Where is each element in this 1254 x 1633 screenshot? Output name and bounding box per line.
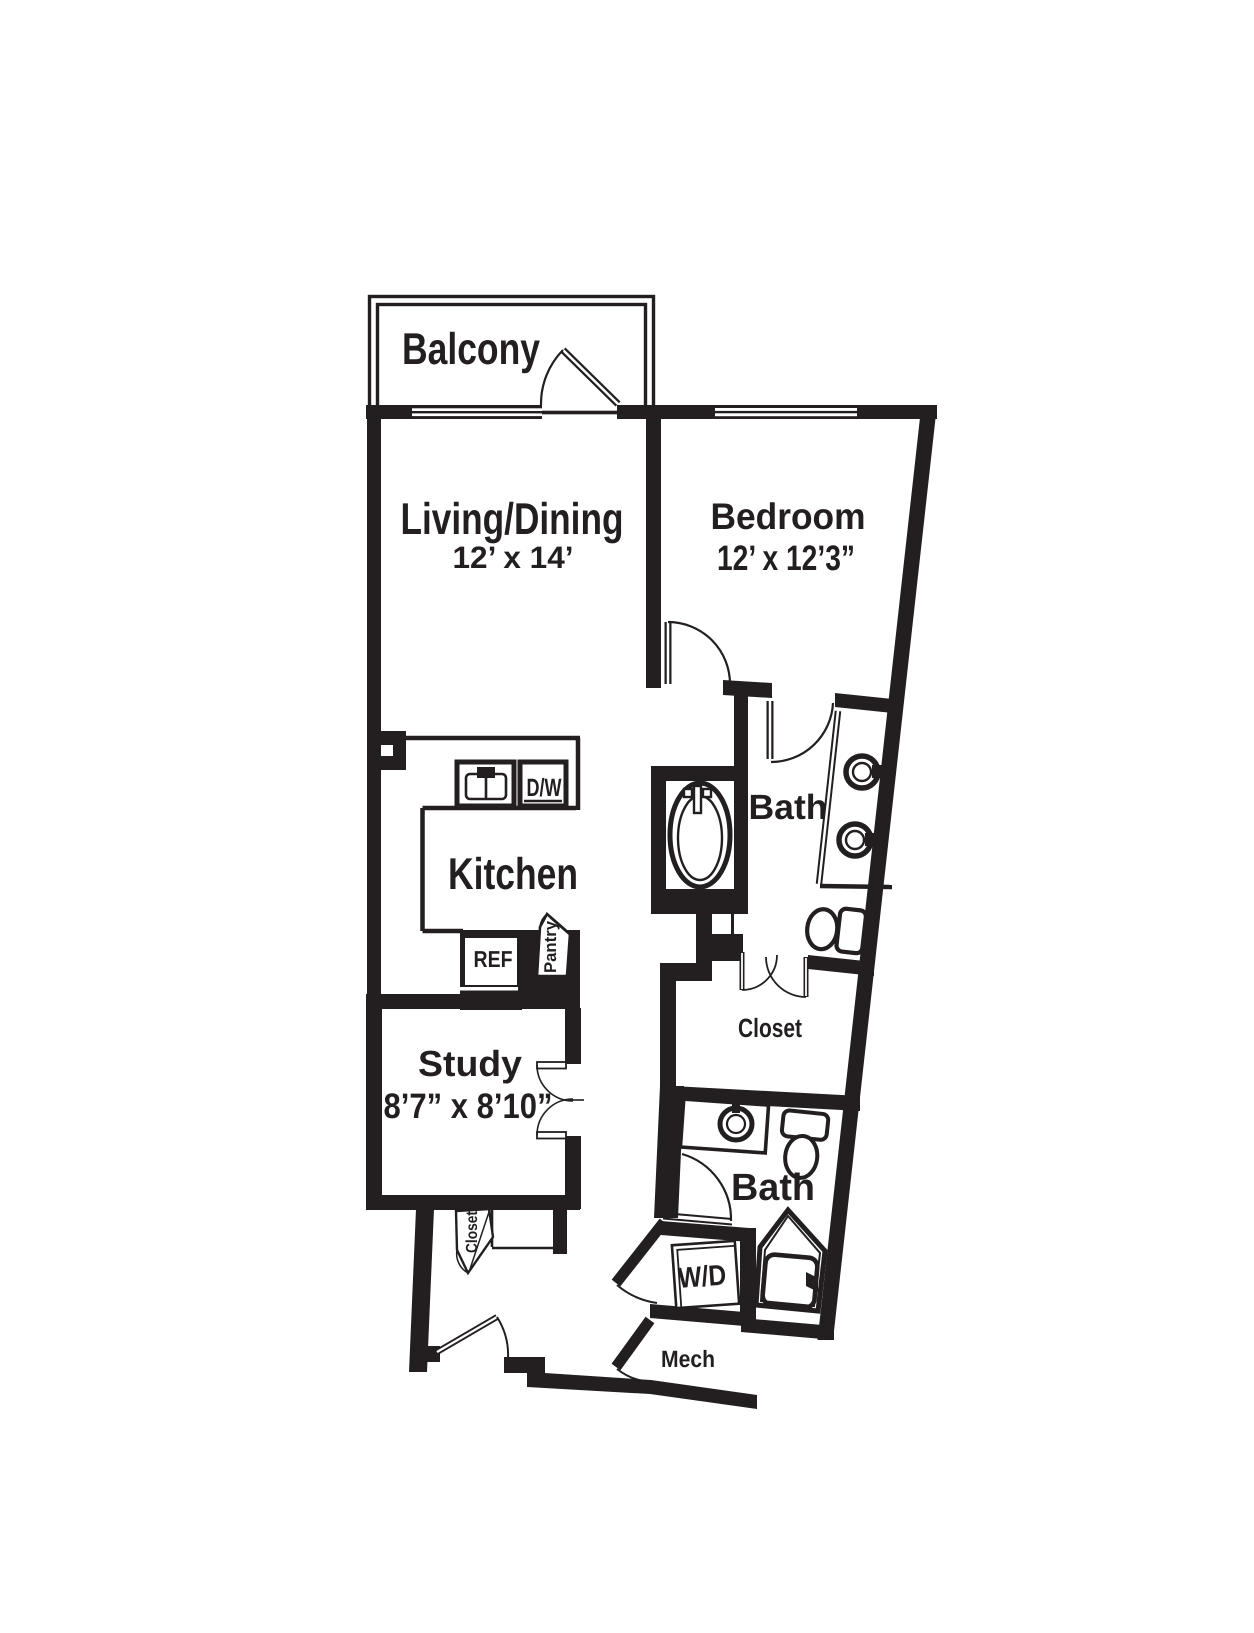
- svg-text:Kitchen: Kitchen: [448, 850, 578, 899]
- svg-text:12’ x 12’3”: 12’ x 12’3”: [717, 538, 855, 578]
- svg-text:Bath: Bath: [731, 1167, 815, 1209]
- svg-text:W/D: W/D: [677, 1260, 727, 1295]
- svg-text:Living/Dining: Living/Dining: [401, 495, 624, 544]
- svg-text:Bedroom: Bedroom: [711, 496, 866, 537]
- svg-text:Pantry: Pantry: [541, 920, 560, 973]
- svg-text:Balcony: Balcony: [402, 325, 540, 374]
- svg-text:Study: Study: [418, 1043, 522, 1084]
- svg-text:D/W: D/W: [527, 774, 562, 802]
- svg-text:Bath: Bath: [749, 788, 828, 827]
- svg-text:12’ x 14’: 12’ x 14’: [453, 540, 574, 575]
- svg-text:8’7” x 8’10”: 8’7” x 8’10”: [384, 1086, 553, 1126]
- svg-text:Closet: Closet: [464, 1210, 481, 1253]
- svg-text:Mech: Mech: [661, 1347, 715, 1373]
- svg-text:REF: REF: [474, 946, 513, 972]
- svg-text:Closet: Closet: [738, 1013, 802, 1043]
